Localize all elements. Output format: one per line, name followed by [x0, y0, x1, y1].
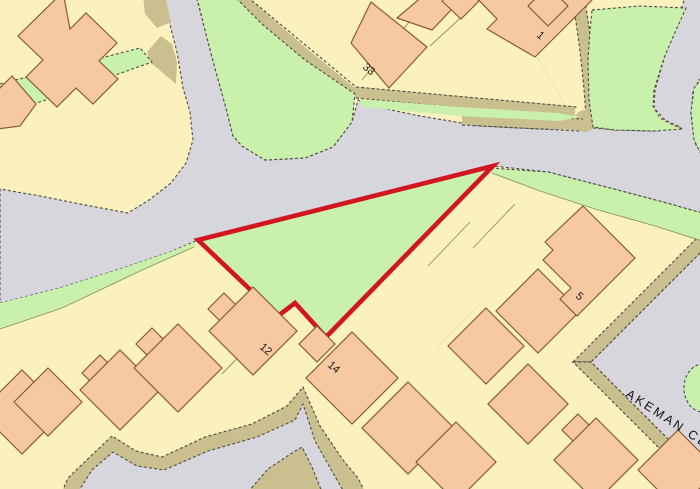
footpath-c — [462, 119, 585, 125]
map-canvas: 33 1 12 14 5 AKEMAN CL — [0, 0, 700, 489]
map: 33 1 12 14 5 AKEMAN CL — [0, 0, 700, 489]
